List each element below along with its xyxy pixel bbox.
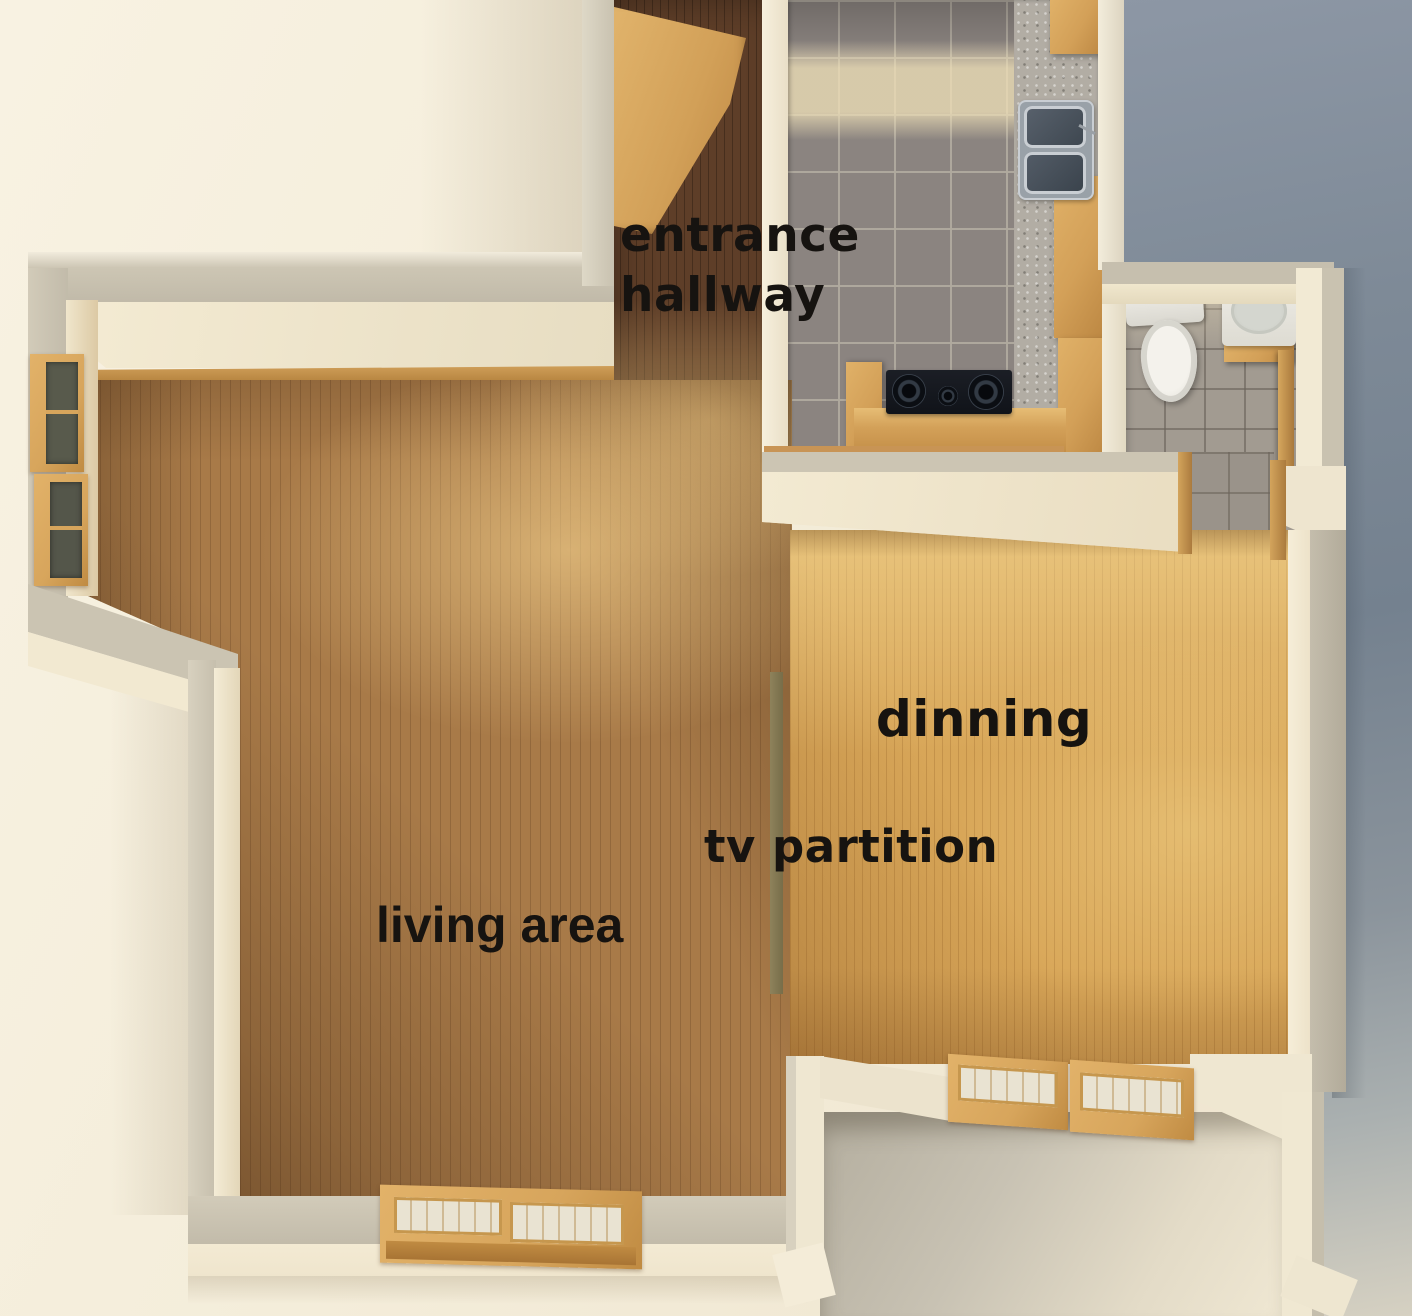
window-mullion — [50, 526, 82, 530]
label-entrance-line2: hallway — [620, 266, 860, 326]
label-tv-partition: tv partition — [704, 820, 998, 873]
label-dining: dinning — [876, 690, 1092, 748]
label-entrance-hallway: entrance hallway — [620, 206, 860, 326]
balcony-window — [1070, 1060, 1194, 1141]
window-pane — [50, 482, 82, 578]
cooktop-burner — [968, 374, 1004, 410]
label-living-area: living area — [376, 896, 623, 954]
wall-hallway-left — [582, 0, 614, 286]
bottom-wall-window — [380, 1185, 642, 1270]
wall-dining-right — [1310, 530, 1346, 1092]
left-wall-window — [30, 354, 84, 472]
kitchen-sink-basin — [1024, 152, 1086, 194]
cooktop-burner — [892, 374, 926, 408]
bathroom-door — [1278, 350, 1294, 466]
wall-top-left-face — [62, 302, 614, 368]
kitchen-cabinet — [1054, 176, 1102, 338]
wall-left-lower — [188, 660, 216, 1208]
cooktop-burner — [938, 386, 958, 406]
kitchen-sink-basin — [1024, 106, 1086, 148]
wall-left-lower-face — [214, 668, 240, 1208]
kitchen-cabinet — [1050, 0, 1102, 54]
window-pane — [394, 1197, 502, 1236]
dining-floor-lighting — [790, 530, 1312, 1064]
dining-floor — [790, 530, 1312, 1064]
toilet-bowl — [1138, 318, 1200, 404]
label-entrance-line1: entrance — [620, 206, 860, 266]
left-wall-window — [34, 474, 88, 586]
window-pane — [510, 1202, 624, 1245]
balcony-floor — [820, 1112, 1292, 1316]
window-pane — [958, 1065, 1058, 1108]
wall-kitchen-dining — [762, 452, 1186, 474]
balcony-window — [948, 1054, 1068, 1130]
wall-top-left — [28, 252, 614, 304]
bathroom-door-jamb — [1270, 460, 1286, 560]
window-sill — [386, 1241, 636, 1266]
wall-dining-right-face — [1288, 530, 1312, 1092]
wall-kitchen-right — [1098, 0, 1124, 270]
window-pane — [1080, 1072, 1184, 1117]
bathroom-door-jamb — [1178, 452, 1192, 554]
floor-plan-render: entrance hallway dinning tv partition li… — [0, 0, 1412, 1316]
window-mullion — [46, 410, 78, 414]
